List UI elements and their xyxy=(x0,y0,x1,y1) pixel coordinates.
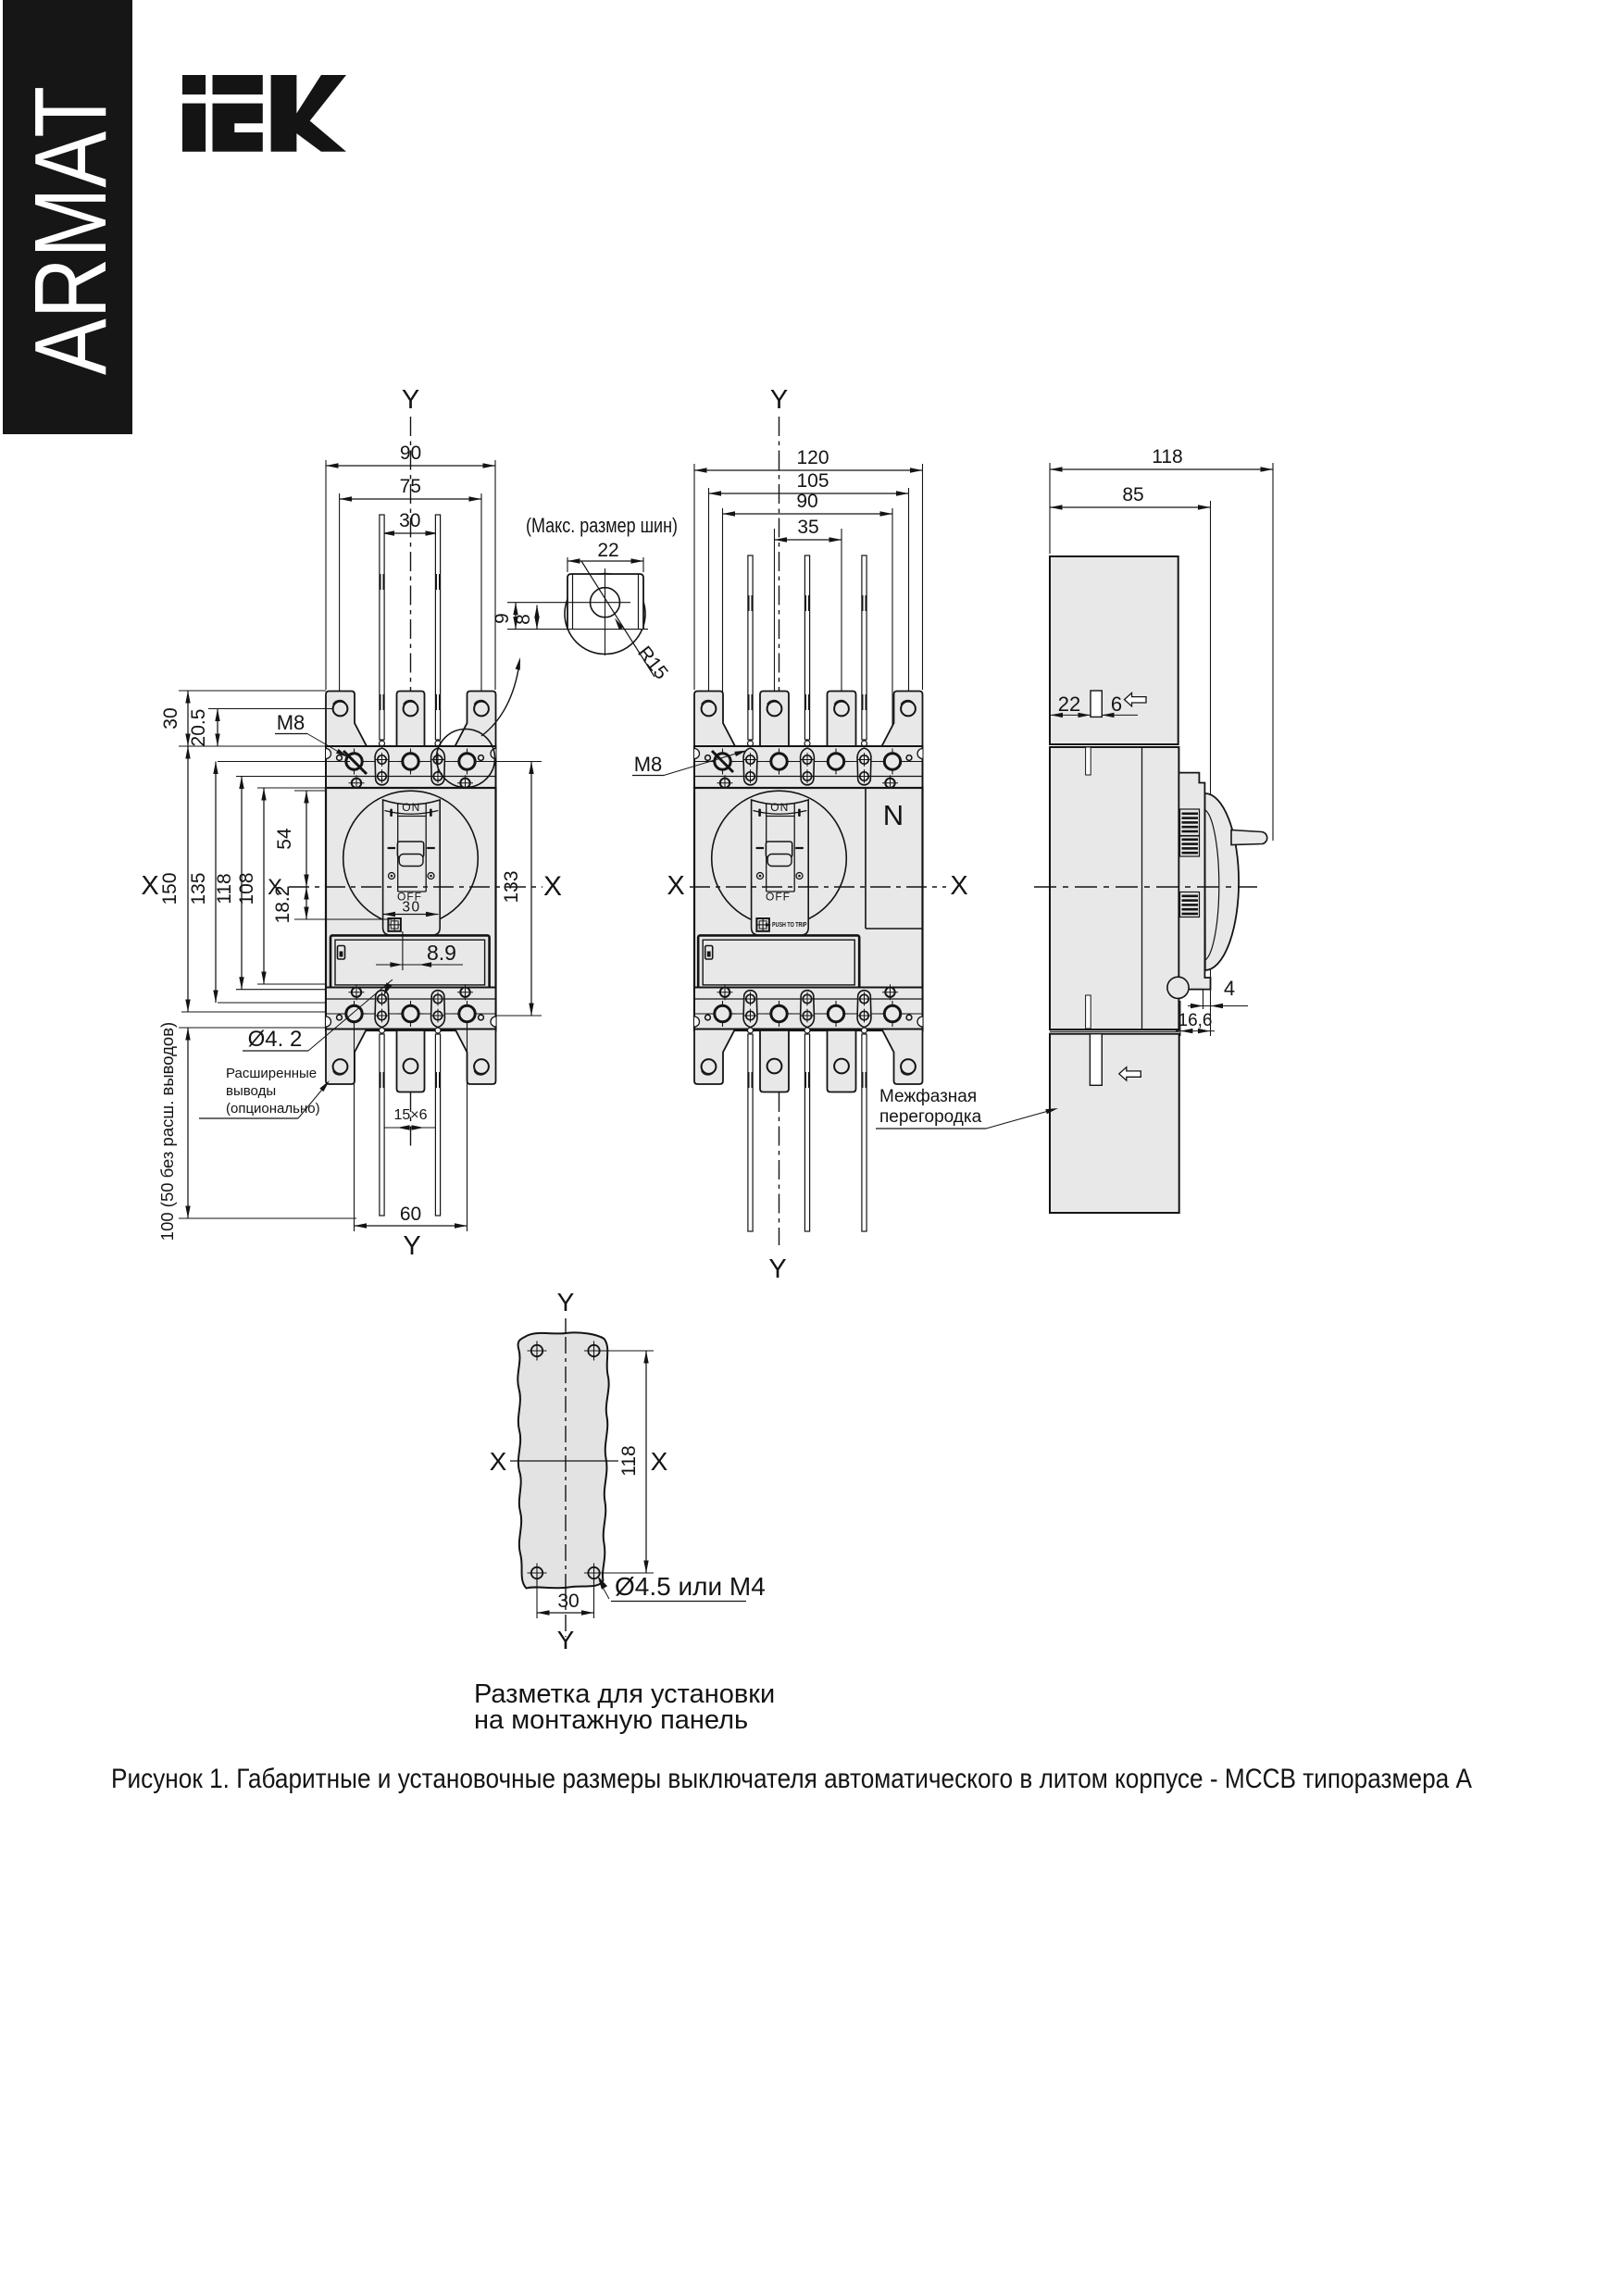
svg-text:118: 118 xyxy=(618,1445,640,1476)
svg-text:30: 30 xyxy=(399,510,420,531)
svg-text:N: N xyxy=(883,799,904,831)
svg-text:на монтажную панель: на монтажную панель xyxy=(474,1705,748,1735)
svg-text:M8: M8 xyxy=(634,753,663,776)
svg-text:перегородка: перегородка xyxy=(879,1107,982,1127)
svg-text:22: 22 xyxy=(1058,693,1080,716)
svg-text:90: 90 xyxy=(400,443,421,464)
svg-text:ON: ON xyxy=(770,801,789,814)
svg-text:90: 90 xyxy=(796,491,817,512)
svg-text:135: 135 xyxy=(188,872,209,905)
svg-text:4: 4 xyxy=(1224,977,1235,1000)
svg-text:118: 118 xyxy=(214,873,235,904)
svg-text:108: 108 xyxy=(236,872,257,905)
svg-text:(Макс. размер шин): (Макс. размер шин) xyxy=(526,514,678,537)
svg-text:100 (50 без расш. выводов): 100 (50 без расш. выводов) xyxy=(157,1022,177,1241)
svg-text:X: X xyxy=(667,871,684,901)
svg-text:X: X xyxy=(950,871,967,901)
svg-text:54: 54 xyxy=(274,828,295,850)
svg-text:20.5: 20.5 xyxy=(188,709,209,747)
svg-text:ARMAT: ARMAT xyxy=(14,86,128,375)
svg-text:Y: Y xyxy=(402,385,419,415)
svg-text:X: X xyxy=(490,1447,507,1476)
svg-text:60: 60 xyxy=(400,1204,421,1225)
svg-text:Y: Y xyxy=(768,1254,786,1284)
svg-text:Рисунок 1. Габаритные и устано: Рисунок 1. Габаритные и установочные раз… xyxy=(111,1764,1472,1794)
svg-text:Расширенные: Расширенные xyxy=(226,1066,317,1081)
svg-text:X: X xyxy=(141,871,158,901)
svg-text:Y: Y xyxy=(557,1626,575,1654)
svg-text:Y: Y xyxy=(403,1231,420,1261)
svg-text:PUSH TO TRIP: PUSH TO TRIP xyxy=(772,922,807,929)
svg-text:30: 30 xyxy=(160,707,181,729)
svg-text:ON: ON xyxy=(402,801,420,814)
svg-text:X: X xyxy=(651,1447,668,1476)
svg-text:120: 120 xyxy=(796,447,829,468)
svg-text:133: 133 xyxy=(501,870,522,903)
svg-text:75: 75 xyxy=(400,476,421,497)
svg-text:Межфазная: Межфазная xyxy=(879,1087,977,1106)
svg-text:22: 22 xyxy=(597,540,618,561)
svg-text:X: X xyxy=(268,875,282,900)
svg-text:Ø4.5 или М4: Ø4.5 или М4 xyxy=(615,1572,766,1601)
svg-text:8: 8 xyxy=(513,614,534,625)
svg-text:30: 30 xyxy=(557,1591,579,1612)
svg-text:150: 150 xyxy=(159,872,181,905)
svg-text:M8: M8 xyxy=(277,711,305,734)
svg-text:6: 6 xyxy=(1111,693,1122,716)
svg-text:35: 35 xyxy=(797,517,818,538)
svg-text:9: 9 xyxy=(492,613,513,624)
svg-text:Y: Y xyxy=(557,1288,575,1316)
svg-text:8.9: 8.9 xyxy=(427,941,456,965)
svg-text:Y: Y xyxy=(770,385,788,415)
svg-text:выводы: выводы xyxy=(226,1083,276,1099)
svg-text:30: 30 xyxy=(402,900,420,916)
svg-text:Ø4. 2: Ø4. 2 xyxy=(248,1027,303,1052)
svg-text:X: X xyxy=(543,871,562,902)
svg-text:15×6: 15×6 xyxy=(393,1107,427,1123)
svg-text:85: 85 xyxy=(1122,484,1143,505)
svg-text:16,6: 16,6 xyxy=(1178,1011,1213,1030)
svg-text:105: 105 xyxy=(796,470,829,492)
svg-text:118: 118 xyxy=(1152,446,1182,468)
